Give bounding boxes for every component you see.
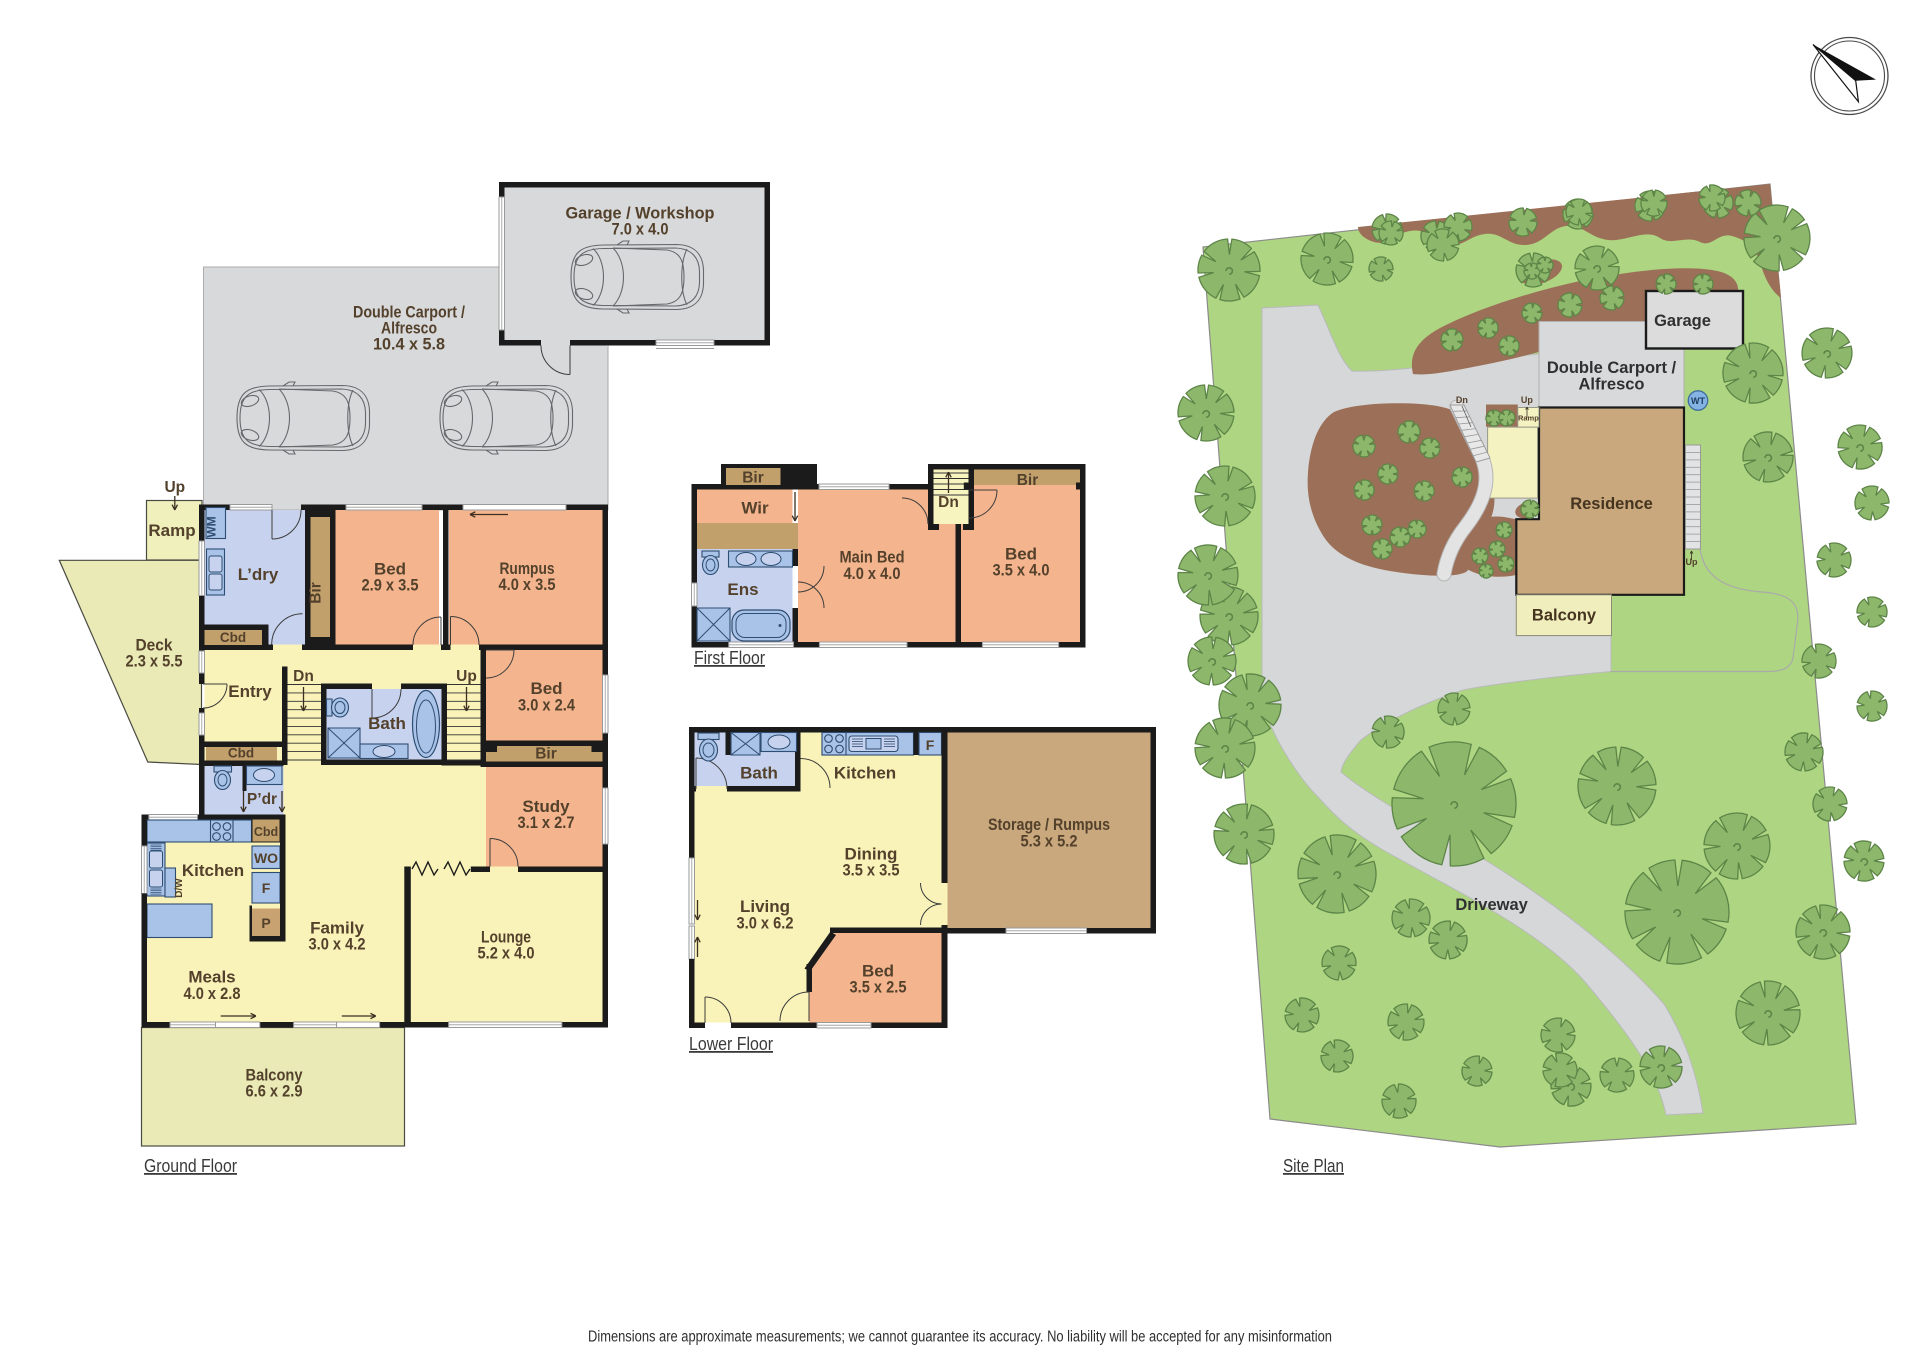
svg-text:WT: WT: [1691, 396, 1705, 406]
svg-text:Entry: Entry: [228, 682, 272, 701]
svg-text:2.9 x 3.5: 2.9 x 3.5: [362, 576, 419, 595]
svg-text:5.3 x 5.2: 5.3 x 5.2: [1021, 831, 1078, 850]
svg-text:Double Carport /: Double Carport /: [1547, 359, 1677, 377]
svg-text:3.0 x 2.4: 3.0 x 2.4: [518, 696, 575, 715]
svg-text:3.0 x 4.2: 3.0 x 4.2: [309, 935, 366, 954]
svg-text:WM: WM: [205, 516, 219, 537]
svg-text:Ramp: Ramp: [148, 521, 195, 540]
svg-text:Driveway: Driveway: [1455, 896, 1528, 914]
svg-text:7.0 x 4.0: 7.0 x 4.0: [612, 220, 669, 239]
svg-text:Kitchen: Kitchen: [182, 861, 244, 880]
svg-text:Bir: Bir: [535, 746, 557, 763]
svg-text:Bath: Bath: [740, 764, 778, 783]
svg-text:2.3 x 5.5: 2.3 x 5.5: [126, 652, 183, 671]
svg-text:Ens: Ens: [727, 580, 758, 599]
svg-text:4.0 x 3.5: 4.0 x 3.5: [499, 575, 556, 594]
svg-text:Site Plan: Site Plan: [1283, 1156, 1344, 1176]
svg-text:4.0 x 2.8: 4.0 x 2.8: [184, 984, 241, 1003]
svg-text:Cbd: Cbd: [228, 746, 254, 761]
svg-text:P’dr: P’dr: [247, 791, 277, 808]
svg-text:Bir: Bir: [742, 470, 764, 487]
svg-text:10.4 x 5.8: 10.4 x 5.8: [373, 335, 445, 354]
svg-text:WO: WO: [254, 850, 278, 866]
svg-text:3.0 x 6.2: 3.0 x 6.2: [737, 913, 794, 932]
svg-text:F: F: [926, 737, 935, 753]
svg-text:Kitchen: Kitchen: [834, 764, 896, 783]
svg-text:P: P: [261, 915, 270, 931]
svg-text:Dimensions are approximate mea: Dimensions are approximate measurements;…: [588, 1329, 1332, 1346]
svg-text:Bir: Bir: [308, 582, 325, 604]
svg-text:Ramp: Ramp: [1518, 414, 1539, 423]
svg-text:Dn: Dn: [938, 494, 959, 511]
svg-text:Ground Floor: Ground Floor: [144, 1156, 237, 1176]
svg-text:4.0 x 4.0: 4.0 x 4.0: [844, 564, 901, 583]
svg-text:Lower Floor: Lower Floor: [689, 1034, 773, 1054]
svg-text:L’dry: L’dry: [238, 565, 279, 584]
svg-text:6.6 x 2.9: 6.6 x 2.9: [246, 1082, 303, 1101]
svg-text:3.5 x 2.5: 3.5 x 2.5: [850, 978, 907, 997]
svg-text:Balcony: Balcony: [1532, 607, 1597, 625]
svg-text:F: F: [262, 880, 271, 896]
svg-text:Cbd: Cbd: [254, 825, 278, 839]
svg-text:D/W: D/W: [174, 878, 185, 898]
svg-text:First Floor: First Floor: [694, 648, 765, 668]
svg-text:Dn: Dn: [1456, 395, 1468, 405]
svg-text:Bir: Bir: [1017, 472, 1039, 489]
svg-text:Up: Up: [456, 668, 477, 685]
svg-text:Up: Up: [164, 479, 185, 496]
svg-text:Alfresco: Alfresco: [1578, 376, 1644, 394]
svg-text:Up: Up: [1521, 395, 1533, 405]
svg-text:Garage: Garage: [1654, 312, 1711, 330]
svg-text:Dn: Dn: [293, 668, 314, 685]
svg-text:Cbd: Cbd: [220, 630, 246, 645]
svg-text:5.2 x 4.0: 5.2 x 4.0: [478, 944, 535, 963]
svg-text:Wir: Wir: [741, 499, 769, 518]
svg-text:3.1 x 2.7: 3.1 x 2.7: [518, 813, 575, 832]
svg-text:Bath: Bath: [368, 714, 406, 733]
svg-text:Residence: Residence: [1570, 495, 1653, 513]
svg-text:3.5 x 3.5: 3.5 x 3.5: [843, 861, 900, 880]
svg-text:3.5 x 4.0: 3.5 x 4.0: [993, 561, 1050, 580]
